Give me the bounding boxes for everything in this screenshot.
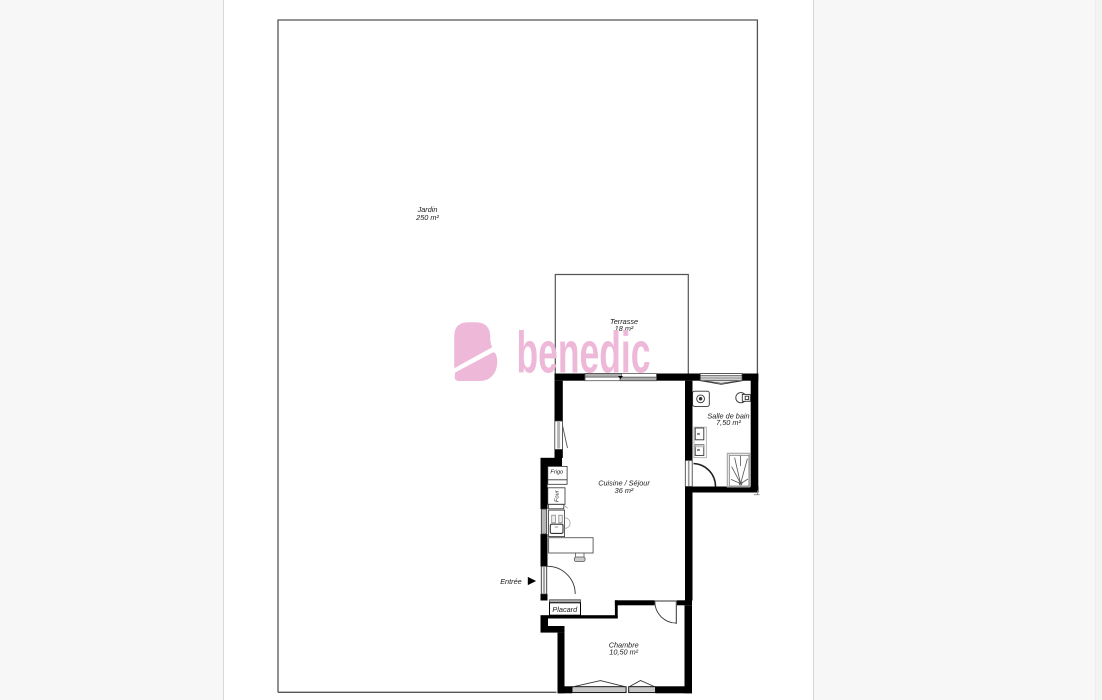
svg-text:36 m²: 36 m²	[615, 486, 634, 495]
svg-text:Entrée: Entrée	[500, 577, 522, 586]
svg-text:Four: Four	[554, 489, 560, 502]
svg-text:10,50 m²: 10,50 m²	[609, 647, 638, 656]
svg-text:benedic: benedic	[517, 321, 651, 386]
svg-text:Placard: Placard	[552, 605, 578, 614]
svg-text:Frigo: Frigo	[550, 469, 563, 475]
svg-text:7,50 m²: 7,50 m²	[716, 418, 741, 427]
svg-text:250 m²: 250 m²	[415, 213, 439, 222]
